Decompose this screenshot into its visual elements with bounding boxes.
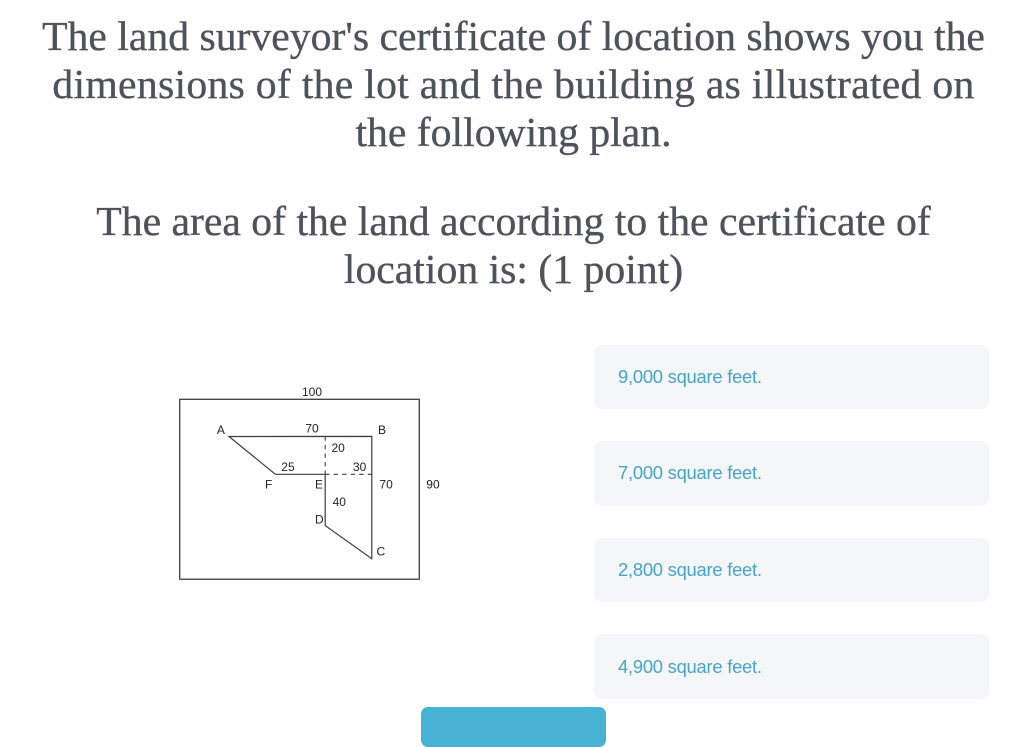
svg-text:E: E xyxy=(315,477,323,491)
svg-text:B: B xyxy=(378,423,386,437)
svg-text:90: 90 xyxy=(426,477,440,491)
svg-text:100: 100 xyxy=(302,385,322,399)
svg-text:D: D xyxy=(315,513,324,527)
svg-text:25: 25 xyxy=(281,460,295,474)
svg-text:A: A xyxy=(217,423,225,437)
svg-text:F: F xyxy=(265,477,272,491)
svg-text:C: C xyxy=(377,545,386,559)
svg-text:30: 30 xyxy=(353,460,367,474)
svg-text:40: 40 xyxy=(333,495,347,509)
svg-text:70: 70 xyxy=(379,477,393,491)
svg-text:20: 20 xyxy=(332,441,346,455)
svg-text:70: 70 xyxy=(305,422,319,436)
